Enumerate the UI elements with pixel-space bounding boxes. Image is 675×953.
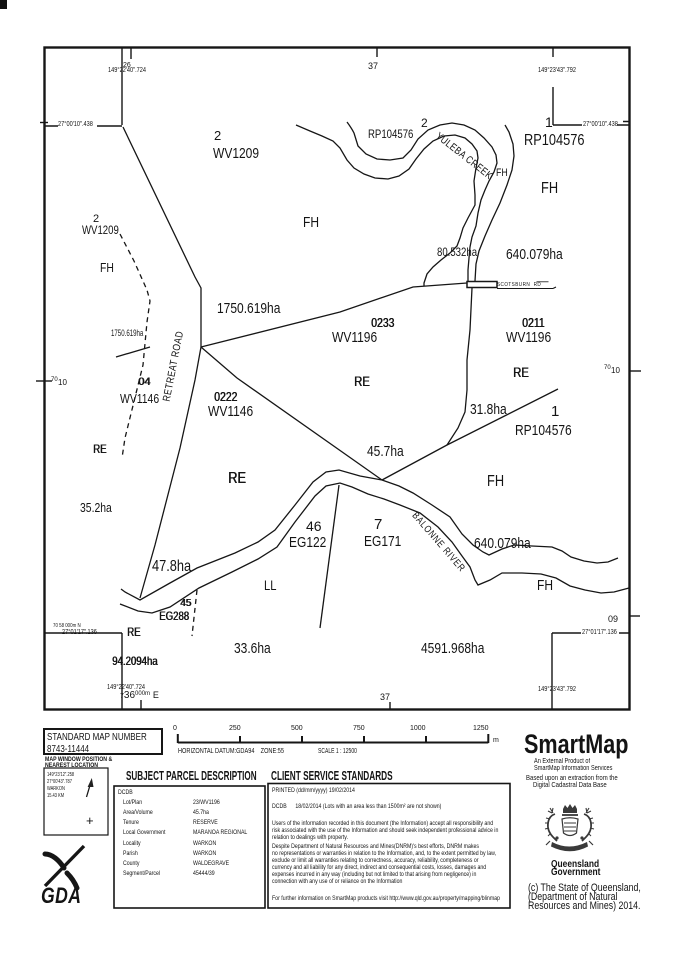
svg-text:QUEENSLAND: QUEENSLAND [556, 851, 585, 856]
